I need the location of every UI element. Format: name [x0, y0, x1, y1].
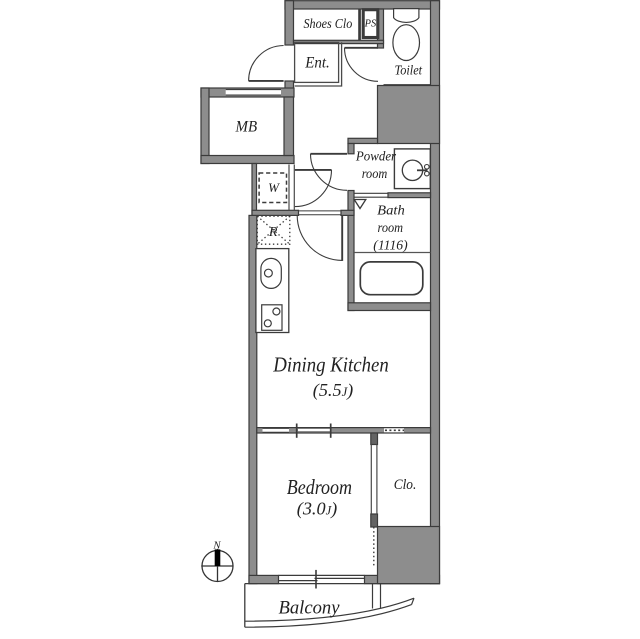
svg-text:Toilet: Toilet	[395, 63, 424, 78]
svg-text:Dining Kitchen: Dining Kitchen	[272, 355, 388, 377]
svg-text:R: R	[268, 225, 278, 240]
svg-text:room: room	[362, 166, 388, 181]
svg-text:N: N	[212, 539, 221, 551]
svg-text:Bath: Bath	[377, 203, 405, 218]
svg-text:PS: PS	[364, 18, 377, 29]
svg-text:(5.5J): (5.5J)	[313, 380, 353, 401]
svg-text:Bedroom: Bedroom	[287, 477, 352, 499]
svg-text:W: W	[268, 180, 280, 195]
svg-text:Clo.: Clo.	[394, 477, 417, 493]
svg-text:(1116): (1116)	[373, 238, 408, 253]
svg-text:MB: MB	[235, 119, 258, 136]
svg-text:Shoes Clo: Shoes Clo	[304, 16, 353, 31]
svg-text:Powder: Powder	[355, 149, 397, 164]
svg-text:(3.0J): (3.0J)	[297, 499, 337, 520]
svg-text:room: room	[378, 220, 404, 235]
svg-text:Ent.: Ent.	[304, 54, 329, 71]
svg-text:Balcony: Balcony	[279, 597, 340, 618]
